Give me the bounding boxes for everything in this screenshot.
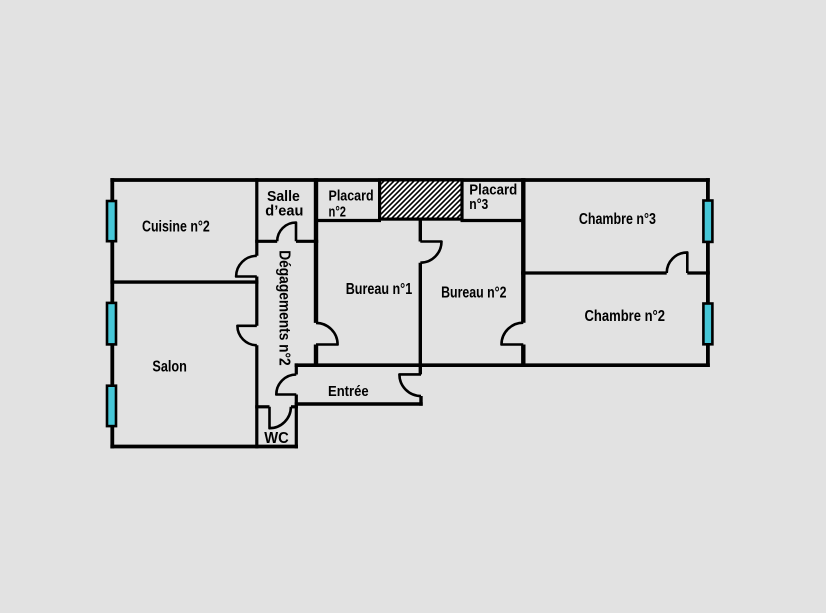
svg-text:Salon: Salon (152, 358, 187, 375)
svg-text:Placard: Placard (329, 188, 374, 205)
svg-text:Cuisine n°2: Cuisine n°2 (142, 218, 210, 235)
svg-text:Bureau n°2: Bureau n°2 (441, 284, 506, 301)
svg-text:d’eau: d’eau (265, 202, 303, 219)
svg-text:Bureau n°1: Bureau n°1 (346, 281, 413, 298)
svg-text:Chambre n°2: Chambre n°2 (585, 308, 666, 325)
svg-text:n°3: n°3 (469, 196, 488, 213)
svg-text:Dégagements n°2: Dégagements n°2 (276, 250, 293, 366)
svg-text:Entrée: Entrée (328, 383, 369, 400)
svg-text:n°2: n°2 (329, 203, 347, 220)
svg-text:WC: WC (264, 430, 289, 447)
svg-text:Chambre n°3: Chambre n°3 (579, 211, 656, 228)
